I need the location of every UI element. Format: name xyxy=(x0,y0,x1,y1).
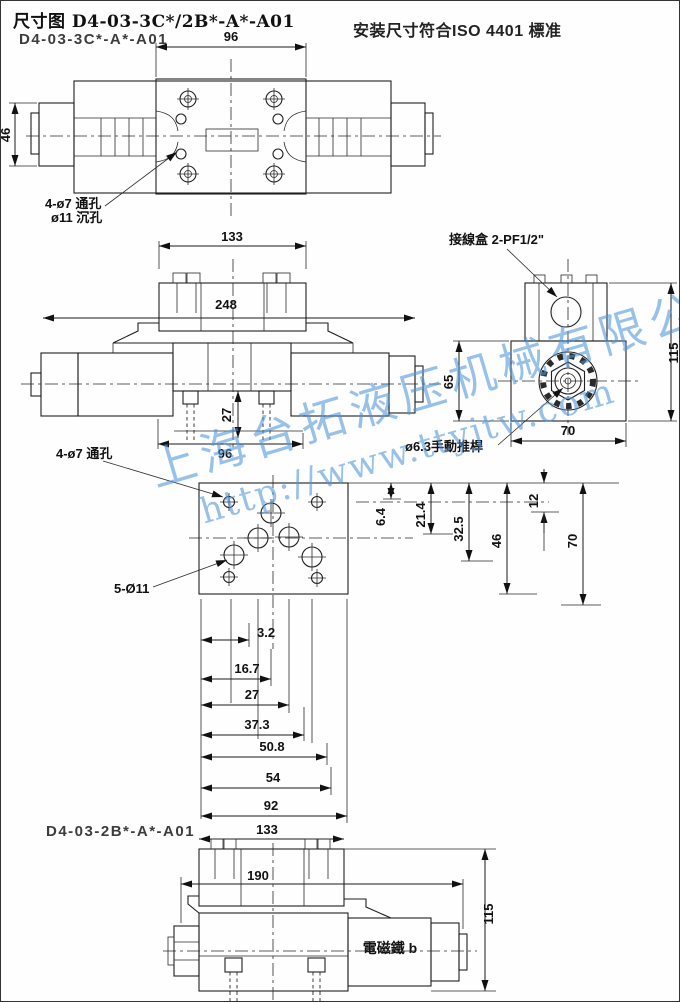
cable-entry-hole xyxy=(551,297,581,327)
small-hole xyxy=(308,569,326,587)
callout-plate-port-holes: 5-Ø11 xyxy=(114,581,149,596)
plan-view: 96 46 4-ø7 通孔 ø11 沉孔 xyxy=(1,29,441,225)
port-hole xyxy=(257,499,285,527)
through-hole xyxy=(176,114,186,124)
drawing-sheet: 尺寸图 D4-03-3C*/2B*-A*-A01 D4-03-3C*-A*-A0… xyxy=(0,0,680,1002)
dim-54: 54 xyxy=(266,770,281,785)
solenoid-label: 電磁鐵 b xyxy=(363,940,417,956)
callout-plate-through-holes: 4-ø7 通孔 xyxy=(56,446,112,461)
dim-37-3: 37.3 xyxy=(244,717,269,732)
bolt-hole xyxy=(177,163,199,185)
dim-92: 92 xyxy=(264,798,278,813)
dim-65: 65 xyxy=(441,375,456,389)
dim-96-bottom: 96 xyxy=(218,446,232,461)
dim-6-4: 6.4 xyxy=(373,507,388,526)
dim-12: 12 xyxy=(526,494,541,508)
small-hole xyxy=(308,493,326,511)
end-view: 接線盒 2-PF1/2" xyxy=(405,232,680,454)
dim-3-2: 3.2 xyxy=(257,625,275,640)
dim-46: 46 xyxy=(1,128,13,142)
dim-16-7: 16.7 xyxy=(234,661,259,676)
technical-drawing: 96 46 4-ø7 通孔 ø11 沉孔 133 248 xyxy=(1,1,680,1002)
bolt-hole xyxy=(263,88,285,110)
single-solenoid-view: 133 190 xyxy=(163,822,496,1001)
dim-27: 27 xyxy=(219,408,234,422)
small-hole xyxy=(220,568,238,586)
callout-manual-pin: ø6.3手動推桿 xyxy=(405,439,483,454)
bolt-hole xyxy=(263,163,285,185)
dim-21-4: 21.4 xyxy=(413,502,428,528)
dim-248: 248 xyxy=(215,297,237,312)
dim-70-plate: 70 xyxy=(565,534,580,548)
dim-115-2b: 115 xyxy=(481,904,496,925)
bolt-hole xyxy=(177,88,199,110)
port-hole xyxy=(220,541,248,569)
callout-counterbore: ø11 沉孔 xyxy=(51,210,102,225)
dim-50-8: 50.8 xyxy=(259,739,284,754)
side-view: 133 248 xyxy=(21,229,441,461)
dim-133-2b: 133 xyxy=(256,822,278,837)
port-hole xyxy=(275,523,303,551)
callout-through-hole: 4-ø7 通孔 xyxy=(45,196,101,211)
through-hole xyxy=(176,149,186,159)
through-hole xyxy=(273,149,283,159)
mounting-plate-view: 4-ø7 通孔 5-Ø11 6.4 21.4 32.5 46 12 xyxy=(56,446,619,823)
dim-70: 70 xyxy=(561,423,575,438)
dim-115: 115 xyxy=(666,343,680,364)
dim-190: 190 xyxy=(247,868,269,883)
dim-46-plate: 46 xyxy=(489,534,504,548)
dim-27-plate: 27 xyxy=(245,687,259,702)
small-hole xyxy=(220,493,238,511)
dim-96-top: 96 xyxy=(224,29,238,44)
dim-133: 133 xyxy=(221,229,243,244)
dim-32-5: 32.5 xyxy=(451,516,466,541)
through-hole xyxy=(273,114,283,124)
port-hole xyxy=(298,543,326,571)
callout-junction-box: 接線盒 2-PF1/2" xyxy=(449,232,544,247)
